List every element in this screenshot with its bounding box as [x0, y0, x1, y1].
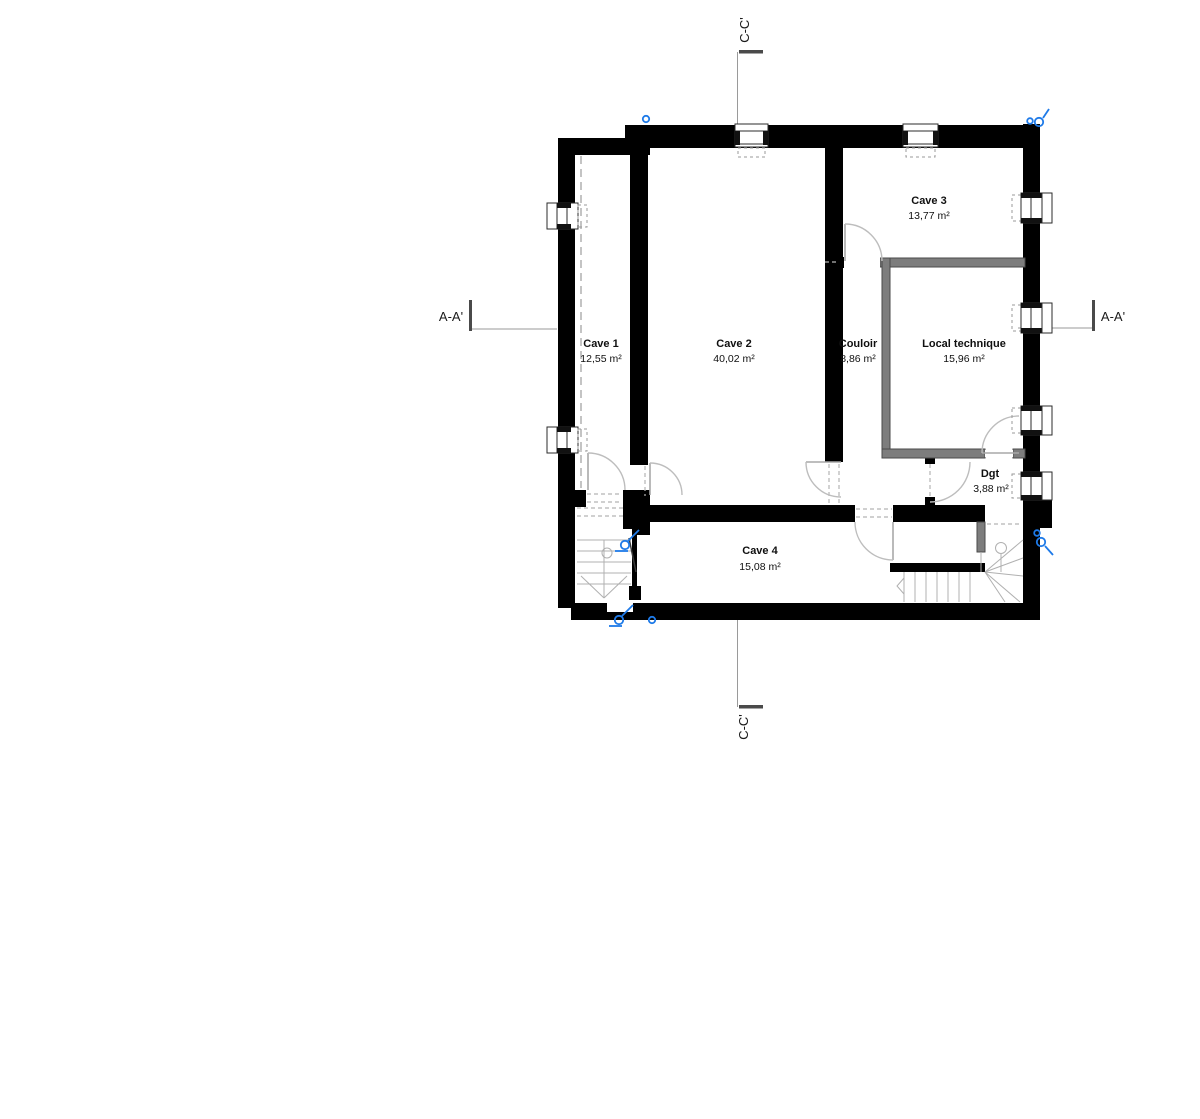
door-cave1-vestibule — [588, 453, 625, 490]
section-marker-cc-top: C-C' — [737, 17, 763, 124]
room-area: 3,88 m² — [973, 483, 1009, 495]
section-label: C-C' — [737, 17, 752, 43]
room-name: Couloir — [839, 338, 878, 350]
section-label: C-C' — [736, 714, 751, 740]
room-name: Cave 2 — [716, 338, 751, 350]
window-right-4 — [1012, 472, 1052, 500]
room-name: Cave 4 — [742, 545, 778, 557]
room-label-dgt: Dgt 3,88 m² — [973, 468, 1009, 495]
room-label-cave4: Cave 4 15,08 m² — [739, 545, 781, 573]
room-area: 8,86 m² — [840, 353, 876, 365]
room-area: 15,96 m² — [943, 353, 985, 365]
downpipe-marker-icon — [1027, 109, 1049, 126]
room-label-couloir: Couloir 8,86 m² — [839, 338, 878, 365]
blue-dot-icon — [643, 116, 649, 122]
floor-plan-canvas: C-C' C-C' A-A' A-A' — [0, 0, 1200, 1119]
room-area: 15,08 m² — [739, 561, 781, 573]
room-label-local-technique: Local technique 15,96 m² — [922, 338, 1006, 365]
section-label: A-A' — [1101, 309, 1125, 324]
door-cave1-cave2 — [650, 463, 682, 495]
floor-plan-page: C-C' C-C' A-A' A-A' — [0, 0, 1200, 1119]
section-marker-cc-bottom: C-C' — [736, 620, 763, 740]
window-right-1 — [1012, 193, 1052, 223]
door-cave2-couloir — [806, 462, 841, 497]
room-area: 12,55 m² — [580, 353, 622, 365]
door-couloir-dgt — [930, 462, 970, 502]
room-label-cave1: Cave 1 12,55 m² — [580, 338, 622, 365]
door-cave3 — [844, 224, 882, 268]
room-label-cave3: Cave 3 13,77 m² — [908, 195, 950, 222]
room-area: 13,77 m² — [908, 210, 950, 222]
window-right-3 — [1012, 406, 1052, 435]
door-couloir-cave4 — [855, 522, 893, 560]
room-name: Cave 3 — [911, 195, 946, 207]
window-top-cave3 — [903, 124, 938, 157]
room-area: 40,02 m² — [713, 353, 755, 365]
staircase-exterior-bottom-left — [577, 538, 636, 598]
section-label: A-A' — [439, 309, 463, 324]
room-label-cave2: Cave 2 40,02 m² — [713, 338, 755, 365]
section-marker-aa-left: A-A' — [439, 300, 557, 331]
room-name: Cave 1 — [583, 338, 618, 350]
room-name: Local technique — [922, 338, 1006, 350]
window-top-cave2 — [735, 124, 768, 157]
room-name: Dgt — [981, 468, 1000, 480]
